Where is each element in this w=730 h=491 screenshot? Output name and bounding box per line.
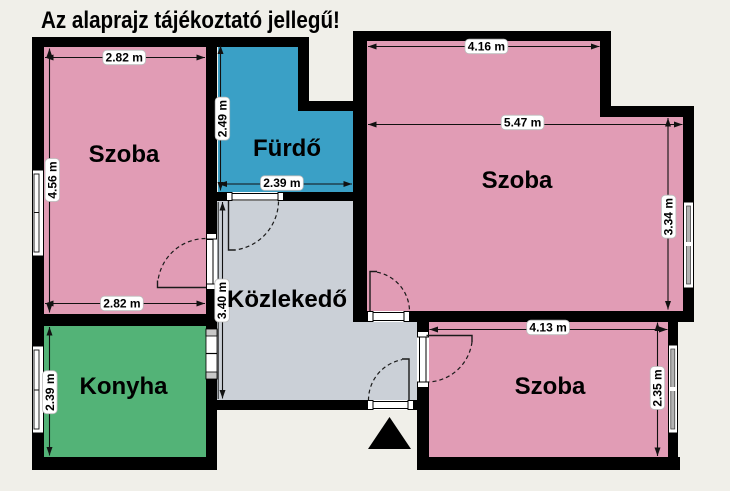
svg-text:4.56 m: 4.56 m xyxy=(45,161,59,198)
svg-text:Az alaprajz tájékoztató jelleg: Az alaprajz tájékoztató jellegű! xyxy=(41,6,340,33)
svg-text:4.13 m: 4.13 m xyxy=(529,321,566,335)
svg-text:3.34 m: 3.34 m xyxy=(662,198,676,235)
svg-text:2.49 m: 2.49 m xyxy=(216,100,230,137)
svg-text:Szoba: Szoba xyxy=(89,141,160,168)
svg-text:2.39 m: 2.39 m xyxy=(43,374,57,411)
svg-text:4.16 m: 4.16 m xyxy=(468,40,505,54)
svg-text:2.39 m: 2.39 m xyxy=(263,176,300,190)
svg-text:2.82 m: 2.82 m xyxy=(103,297,140,311)
svg-text:Szoba: Szoba xyxy=(515,373,586,400)
svg-text:5.47 m: 5.47 m xyxy=(504,116,541,130)
svg-text:Szoba: Szoba xyxy=(482,167,553,194)
svg-text:Konyha: Konyha xyxy=(79,373,168,400)
svg-text:Fürdő: Fürdő xyxy=(253,135,321,162)
svg-text:2.82 m: 2.82 m xyxy=(106,51,143,65)
svg-text:Közlekedő: Közlekedő xyxy=(227,286,347,313)
svg-text:2.35 m: 2.35 m xyxy=(651,369,665,406)
